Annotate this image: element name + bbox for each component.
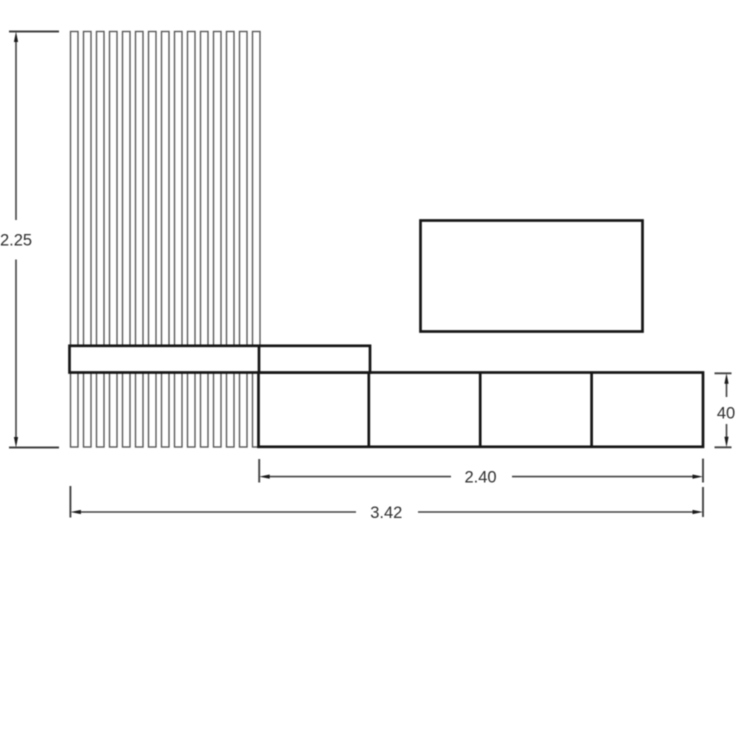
svg-text:3.42: 3.42 [370,504,402,522]
svg-text:40: 40 [717,405,735,423]
svg-text:2.40: 2.40 [464,469,496,487]
svg-text:2.25: 2.25 [0,232,32,250]
